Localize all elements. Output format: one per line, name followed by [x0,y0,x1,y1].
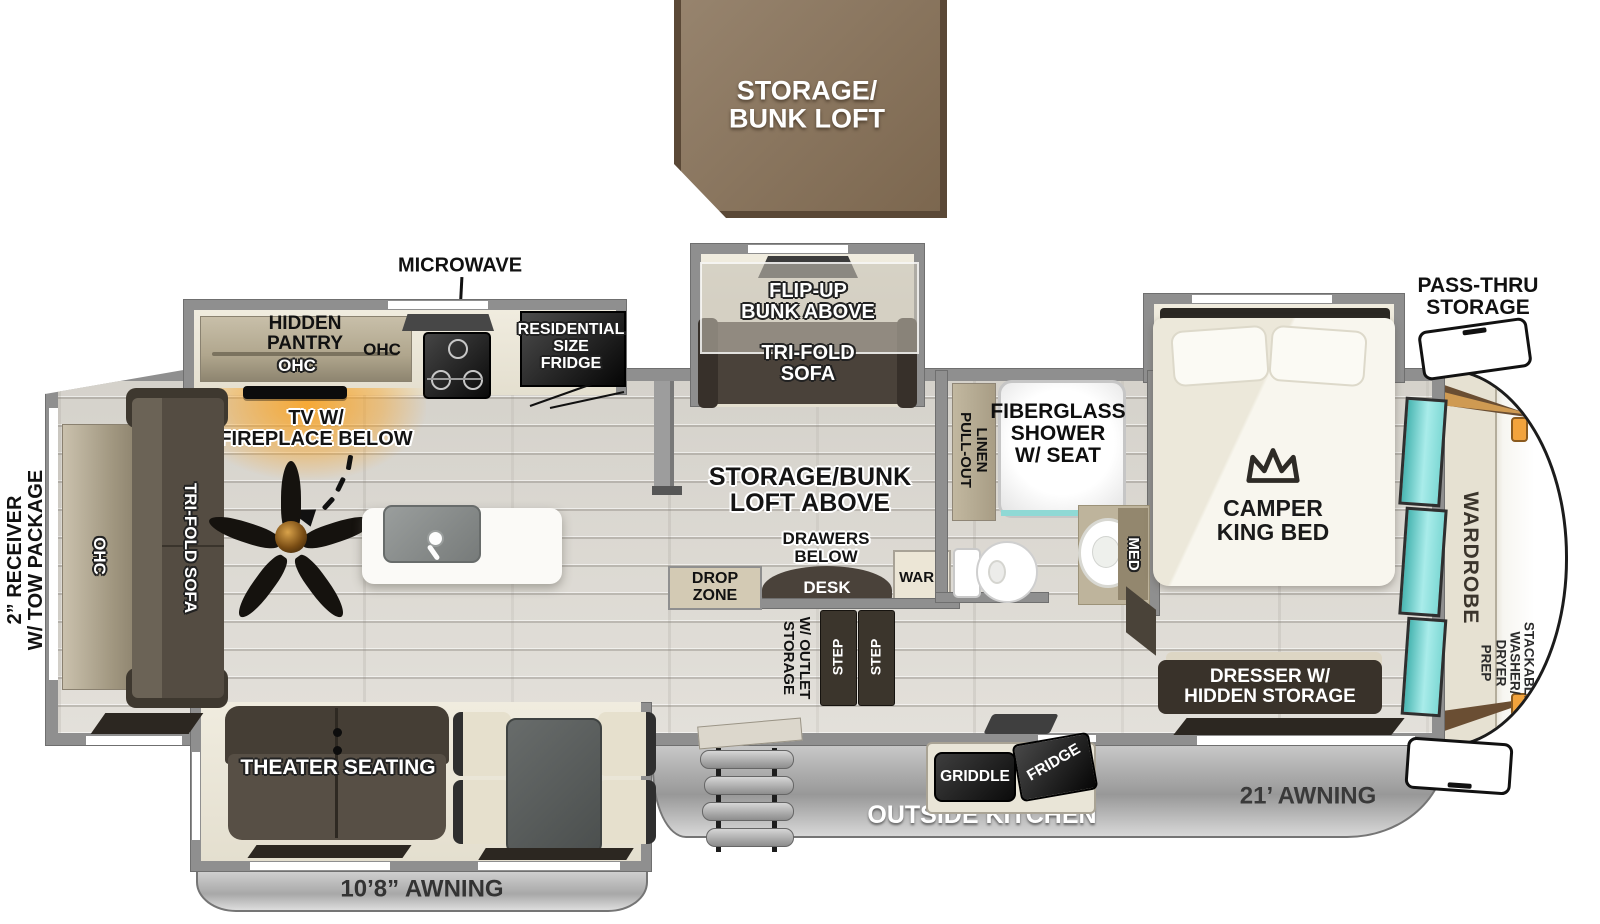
bunk-slide-window [748,245,848,253]
dinette-floor-mat [478,848,633,860]
kitchen-slide-window [388,301,488,309]
hidden-pantry-label: HIDDENPANTRY [267,314,343,354]
stove-burner-icon [448,339,468,359]
stove-grate-line [427,378,483,380]
dinette-chair [453,780,511,844]
rear-awning-label: 10’8” AWNING [340,876,503,901]
dinette-table [506,718,602,854]
stove-burner-icon [463,370,483,390]
rear-tri-fold-sofa [132,398,224,698]
bedroom-slide-window [1192,295,1332,303]
bottom-right-window [1197,736,1415,745]
washer-dryer-prep-label: STACKABLEWASHER/ DRYERPREP [1479,622,1536,704]
entry-step [704,776,794,795]
pull-out-linen-label: LINENPULL-OUT [957,412,989,488]
residential-fridge-label: RESIDENTIALSIZEFRIDGE [518,322,625,372]
bedroom-window-1 [1398,397,1447,508]
step-2-label: STEP [869,639,884,676]
entry-wall-stub [654,381,674,489]
step-1-label: STEP [831,639,846,676]
fridge-door-swing-lines [528,380,628,410]
rear-ohc-label: OHC [90,537,108,575]
bed-pillow-left [1170,325,1270,388]
bath-sink-inner [1092,536,1120,568]
flip-up-bunk-label: FLIP-UPBUNK ABOVE [741,281,875,323]
dinette-chair [453,712,511,776]
front-cap: WARDROBE STACKABLEWASHER/ DRYERPREP [1440,368,1568,748]
griddle-label: GRIDDLE [940,769,1010,785]
dinette-chair [598,712,656,776]
pass-thru-door-top [1417,317,1533,382]
bed-pillow-right [1268,325,1368,388]
storage-bunk-loft-label: STORAGE/BUNK LOFT [729,77,885,134]
floorplan-canvas: STORAGE/BUNK LOFT MICROWAVE PASS-THRUSTO… [0,0,1600,924]
toilet-flush-button [988,560,1006,584]
storage-outlet-label: W/ OUTLETSTORAGE [780,617,812,700]
bedroom-floor-mat [1173,718,1404,735]
cupholder-icon [333,728,342,737]
shower-label: FIBERGLASSSHOWERW/ SEAT [990,401,1125,467]
camper-king-label: CAMPERKING BED [1217,496,1329,544]
rear-sofa-label: TRI-FOLD SOFA [181,483,199,613]
rear-floor-mat [91,713,204,734]
tv-bar [243,386,347,399]
bedroom-window-3 [1401,617,1448,718]
dresser-label: DRESSER W/HIDDEN STORAGE [1184,667,1356,707]
bottom-left-window [86,736,182,745]
theater-floor-mat [247,845,411,858]
stove-cooktop [423,332,491,399]
cap-handle-top [1511,417,1528,442]
entry-step [706,828,794,847]
bath-wall-left [935,370,948,596]
entry-step [700,750,794,769]
storage-bunk-loft-above-label: STORAGE/BUNKLOFT ABOVE [709,464,911,517]
pass-thru-storage-label: PASS-THRUSTORAGE [1418,275,1539,319]
receiver-tow-label: 2” RECEIVERW/ TOW PACKAGE [5,470,47,650]
rear-window [49,408,58,680]
toilet-icon [976,541,1038,603]
range-hood [402,314,494,331]
crown-icon [1244,445,1302,487]
microwave-label: MICROWAVE [398,256,522,277]
counter-ohc-label: OHC [363,341,401,359]
bunk-sofa-label: TRI-FOLDSOFA [761,343,854,385]
cupholder-icon [333,746,342,755]
theater-seating-label: THEATER SEATING [240,757,435,779]
dinette-chair [598,780,656,844]
pass-thru-door-bottom [1404,736,1513,795]
stove-burner-icon [431,370,451,390]
main-awning-label: 21’ AWNING [1240,783,1376,808]
theater-bottom-window-2 [478,862,620,870]
entry-step [702,802,794,821]
drop-zone-label: DROPZONE [692,571,738,605]
desk-label: DESK [803,579,850,597]
wardrobe-label: WARDROBE [1459,492,1481,625]
pantry-ohc-label: OHC [278,357,316,375]
theater-left-window [192,752,200,840]
tv-fireplace-label: TV W/FIREPLACE BELOW [219,408,412,450]
outside-kitchen-vent [983,714,1058,734]
theater-bottom-window-1 [250,862,390,870]
med-label: MED [1125,537,1141,570]
entry-wall-foot [652,486,682,495]
bedroom-window-2 [1398,507,1447,618]
drawers-below-label: DRAWERSBELOW [783,530,870,566]
